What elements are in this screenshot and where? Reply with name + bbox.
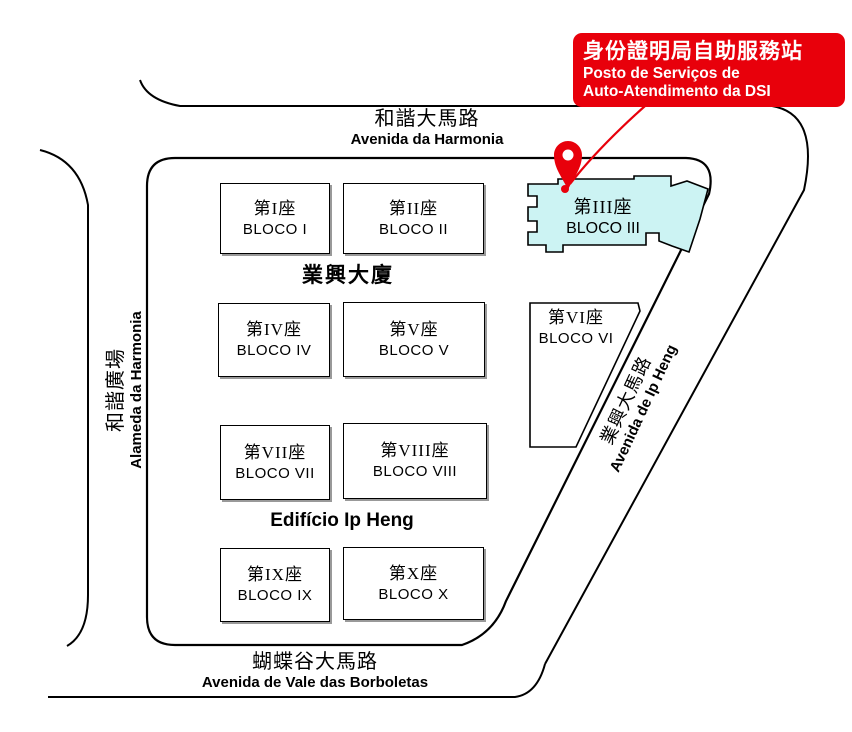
street-bottom-zh: 蝴蝶谷大馬路 <box>202 651 428 674</box>
block-v-label-pt: BLOCO V <box>379 341 449 361</box>
complex-name-zh: 業興大廈 <box>302 264 394 288</box>
block-viii-box: 第VIII座 BLOCO VIII <box>343 423 487 499</box>
block-vi-label-pt: BLOCO VI <box>528 329 624 349</box>
block-ix-label-pt: BLOCO IX <box>238 586 313 606</box>
street-top-pt: Avenida da Harmonia <box>351 131 504 148</box>
dsi-service-callout: 身份證明局自助服務站 Posto de Serviços de Auto-Ate… <box>573 33 845 107</box>
map-canvas: 身份證明局自助服務站 Posto de Serviços de Auto-Ate… <box>0 0 852 732</box>
block-vii-label-zh: 第VII座 <box>244 442 307 464</box>
complex-name-pt: Edifício Ip Heng <box>270 510 414 532</box>
street-label-top: 和諧大馬路 Avenida da Harmonia <box>351 108 504 148</box>
block-vii-box: 第VII座 BLOCO VII <box>220 425 330 500</box>
block-ii-box: 第II座 BLOCO II <box>343 183 484 254</box>
location-pin-hole <box>563 150 574 161</box>
street-left-pt: Alameda da Harmonia <box>128 311 145 469</box>
street-bottom-pt: Avenida de Vale das Borboletas <box>202 674 428 691</box>
block-iii-label: 第III座 BLOCO III <box>566 196 640 239</box>
block-x-box: 第X座 BLOCO X <box>343 547 484 620</box>
block-viii-label-pt: BLOCO VIII <box>373 462 457 482</box>
callout-title-zh: 身份證明局自助服務站 <box>583 39 845 65</box>
callout-title-pt-line1: Posto de Serviços de <box>583 65 845 83</box>
street-top-zh: 和諧大馬路 <box>351 108 504 131</box>
block-i-label-zh: 第I座 <box>254 198 297 220</box>
block-x-label-zh: 第X座 <box>389 563 438 585</box>
callout-title-pt-line2: Auto-Atendimento da DSI <box>583 83 845 101</box>
block-iii-label-pt: BLOCO III <box>566 218 640 239</box>
block-ix-box: 第IX座 BLOCO IX <box>220 548 330 622</box>
block-viii-label-zh: 第VIII座 <box>380 440 449 462</box>
road-left-outer-edge <box>40 150 88 646</box>
block-vi-label: 第VI座 BLOCO VI <box>528 307 624 349</box>
block-iii-label-zh: 第III座 <box>566 196 640 218</box>
block-vi-label-zh: 第VI座 <box>528 307 624 329</box>
block-vii-label-pt: BLOCO VII <box>235 464 315 484</box>
block-x-label-pt: BLOCO X <box>378 585 448 605</box>
block-i-box: 第I座 BLOCO I <box>220 183 330 254</box>
block-iv-box: 第IV座 BLOCO IV <box>218 303 330 377</box>
callout-leader-line <box>570 106 645 184</box>
block-v-box: 第V座 BLOCO V <box>343 302 485 377</box>
block-ii-label-pt: BLOCO II <box>379 220 448 240</box>
block-ix-label-zh: 第IX座 <box>247 564 303 586</box>
leader-end-dot <box>561 185 569 193</box>
street-label-left: 和諧廣場 Alameda da Harmonia <box>105 311 145 469</box>
street-left-zh: 和諧廣場 <box>105 311 128 469</box>
block-iv-label-zh: 第IV座 <box>246 319 302 341</box>
street-label-bottom: 蝴蝶谷大馬路 Avenida de Vale das Borboletas <box>202 651 428 691</box>
block-iv-label-pt: BLOCO IV <box>237 341 312 361</box>
block-ii-label-zh: 第II座 <box>389 198 438 220</box>
block-i-label-pt: BLOCO I <box>243 220 307 240</box>
block-v-label-zh: 第V座 <box>389 319 438 341</box>
